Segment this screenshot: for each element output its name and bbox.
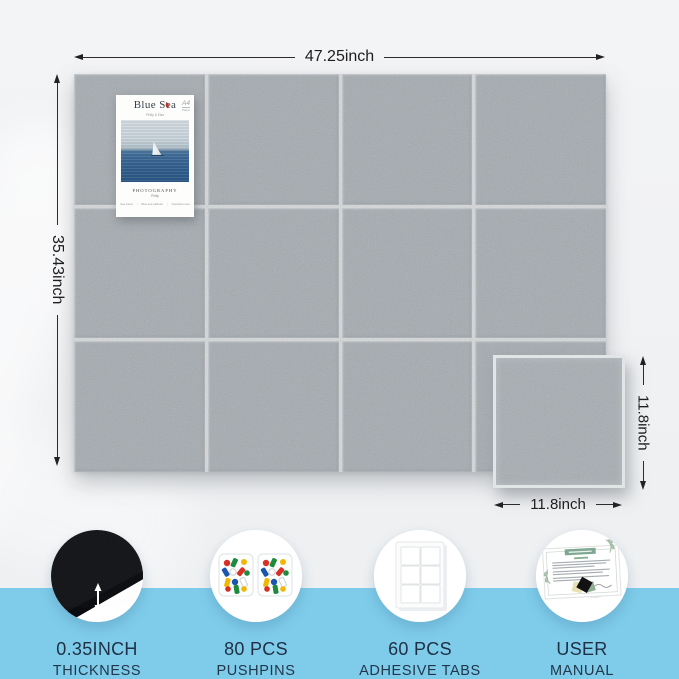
tile-width-dimension: 11.8inch [494, 496, 622, 513]
red-leaf-icon [163, 96, 170, 114]
footer-separator: | [167, 202, 168, 206]
felt-tile [342, 208, 473, 339]
board-height-label: 35.43inch [48, 225, 66, 314]
feature-adhesive-tabs: 60 PCS ADHESIVE TABS [338, 530, 502, 679]
pushpins-icon [210, 530, 302, 622]
poster-header: Blue Sea A4 Paper [121, 100, 189, 111]
paper-label: Paper [182, 108, 190, 112]
arrowhead-down-icon [640, 481, 646, 490]
feature-user-manual: USER MANUAL [500, 530, 664, 679]
felt-tile [208, 74, 339, 205]
a4-label: A4 [182, 100, 190, 108]
board-height-dimension: 35.43inch [44, 74, 70, 466]
arrowhead-left-icon [494, 502, 503, 508]
felt-tile [342, 341, 473, 472]
tile-width-label: 11.8inch [520, 496, 596, 513]
adhesive-tabs-icon [374, 530, 466, 622]
arrowhead-right-icon [613, 502, 622, 508]
poster-title: Blue Sea [121, 100, 189, 111]
felt-tile [342, 74, 473, 205]
poster-footer: Sea travel | Blue sea sailboat | Inspira… [121, 202, 189, 206]
feature-value: USER [500, 639, 664, 660]
felt-tile [475, 208, 606, 339]
single-felt-tile [493, 355, 625, 488]
tile-height-label: 11.8inch [635, 385, 652, 461]
poster-caption: PHOTOGRAPHY [121, 188, 189, 193]
arrowhead-right-icon [596, 54, 605, 60]
footer-separator: | [137, 202, 138, 206]
felt-tile [74, 341, 205, 472]
felt-tile [208, 208, 339, 339]
felt-tile [475, 74, 606, 205]
sailboat-icon [152, 142, 161, 155]
felt-tile [208, 341, 339, 472]
feature-value: 80 PCS [174, 639, 338, 660]
feature-value: 60 PCS [338, 639, 502, 660]
feature-label: PUSHPINS [174, 663, 338, 679]
feature-label: THICKNESS [15, 663, 179, 679]
poster-subtitle: Philip & Elsa [121, 113, 189, 117]
board-width-label: 47.25inch [295, 48, 384, 66]
product-image: Blue Sea A4 Paper Philip & Elsa PHOTOGRA… [0, 0, 679, 679]
feature-label: ADHESIVE TABS [338, 663, 502, 679]
poster-footer-item: Inspiration sea [172, 202, 190, 206]
sailboat-hull [151, 155, 164, 157]
board-width-dimension: 47.25inch [74, 48, 605, 66]
arrowhead-down-icon [54, 457, 60, 466]
a4-paper-badge: A4 Paper [182, 100, 190, 112]
poster-author: Philip [121, 194, 189, 198]
felt-texture [496, 358, 622, 485]
feature-thickness: 0.35INCH THICKNESS [15, 530, 179, 679]
feature-value: 0.35INCH [15, 639, 179, 660]
poster-footer-item: Sea travel [120, 202, 133, 206]
feature-label: MANUAL [500, 663, 664, 679]
feature-pushpins: 80 PCS PUSHPINS [174, 530, 338, 679]
blue-sea-poster: Blue Sea A4 Paper Philip & Elsa PHOTOGRA… [116, 95, 194, 217]
sea-photo [121, 120, 189, 182]
arrowhead-up-icon [640, 356, 646, 365]
user-manual-icon [536, 530, 628, 622]
tile-height-dimension: 11.8inch [630, 356, 656, 490]
arrowhead-up-icon [54, 74, 60, 83]
felt-tile [74, 208, 205, 339]
arrowhead-left-icon [74, 54, 83, 60]
poster-footer-item: Blue sea sailboat [142, 202, 163, 206]
felt-tile-thickness-icon [51, 530, 143, 622]
